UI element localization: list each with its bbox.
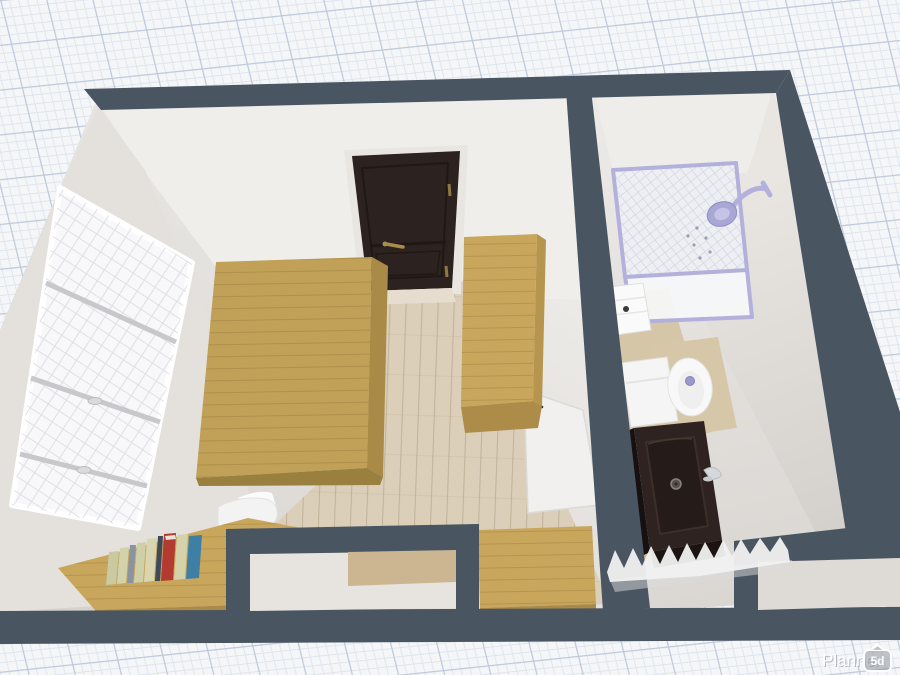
dresser-grain [478, 526, 596, 608]
bottom-window-jamb [456, 524, 479, 610]
wardrobe[interactable] [461, 234, 546, 433]
wall-bottom[interactable] [0, 607, 900, 644]
bed-platform[interactable] [196, 257, 388, 486]
bedroom-bottom-window-floor [348, 550, 456, 586]
window-latch[interactable] [77, 467, 91, 474]
floor-plan-viewport: Planner Planner 5d [0, 0, 900, 675]
toilet-flush-button[interactable] [686, 377, 695, 386]
faucet-base [703, 477, 713, 482]
floor-plan-canvas[interactable]: Planner Planner 5d [0, 0, 900, 675]
drawer-knob[interactable] [623, 306, 629, 312]
dresser[interactable] [478, 526, 596, 618]
window-latch[interactable] [88, 398, 102, 405]
bottom-window-jamb [226, 529, 250, 613]
watermark-badge-label: 5d [870, 654, 884, 668]
wardrobe-grain [461, 234, 537, 407]
vanity-drain-hole [675, 483, 678, 486]
bed-grain [196, 257, 372, 478]
